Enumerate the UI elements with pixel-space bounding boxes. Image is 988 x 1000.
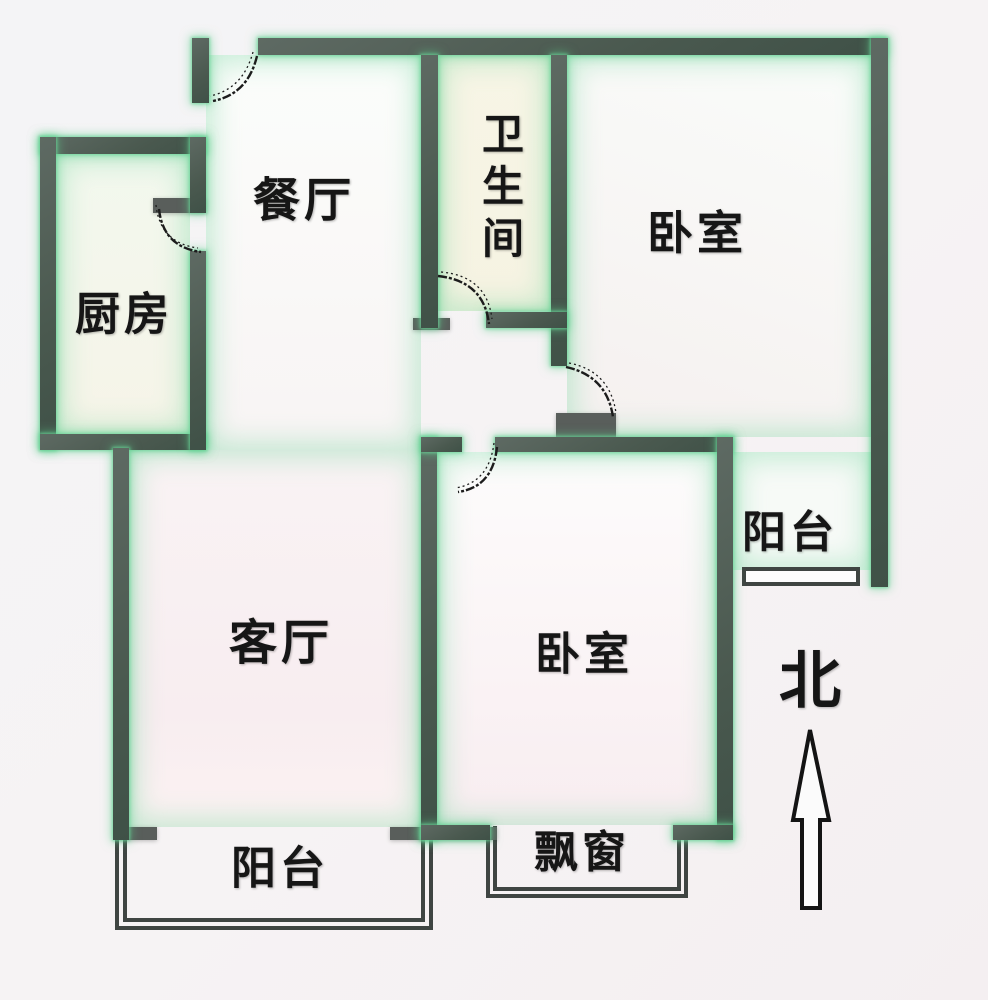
bathroom-label: 卫生间 — [470, 112, 531, 268]
north-arrow-shape — [793, 730, 829, 908]
dining-label: 餐厅 — [253, 162, 355, 231]
kitchen-label: 厨房 — [75, 278, 173, 343]
balcony-south-label: 阳台 — [231, 832, 329, 897]
balcony-east-label: 阳台 — [742, 496, 838, 560]
floor-plan-canvas: 餐厅 厨房 卫生间 卧室 阳台 客厅 卧室 飘窗 阳台 北 — [0, 0, 988, 1000]
bedroom-north-label: 卧室 — [647, 197, 747, 263]
living-label: 客厅 — [229, 603, 333, 673]
north-label: 北 — [779, 630, 841, 720]
bedroom-south-label: 卧室 — [535, 618, 633, 683]
bay-window-label: 飘窗 — [534, 816, 630, 880]
